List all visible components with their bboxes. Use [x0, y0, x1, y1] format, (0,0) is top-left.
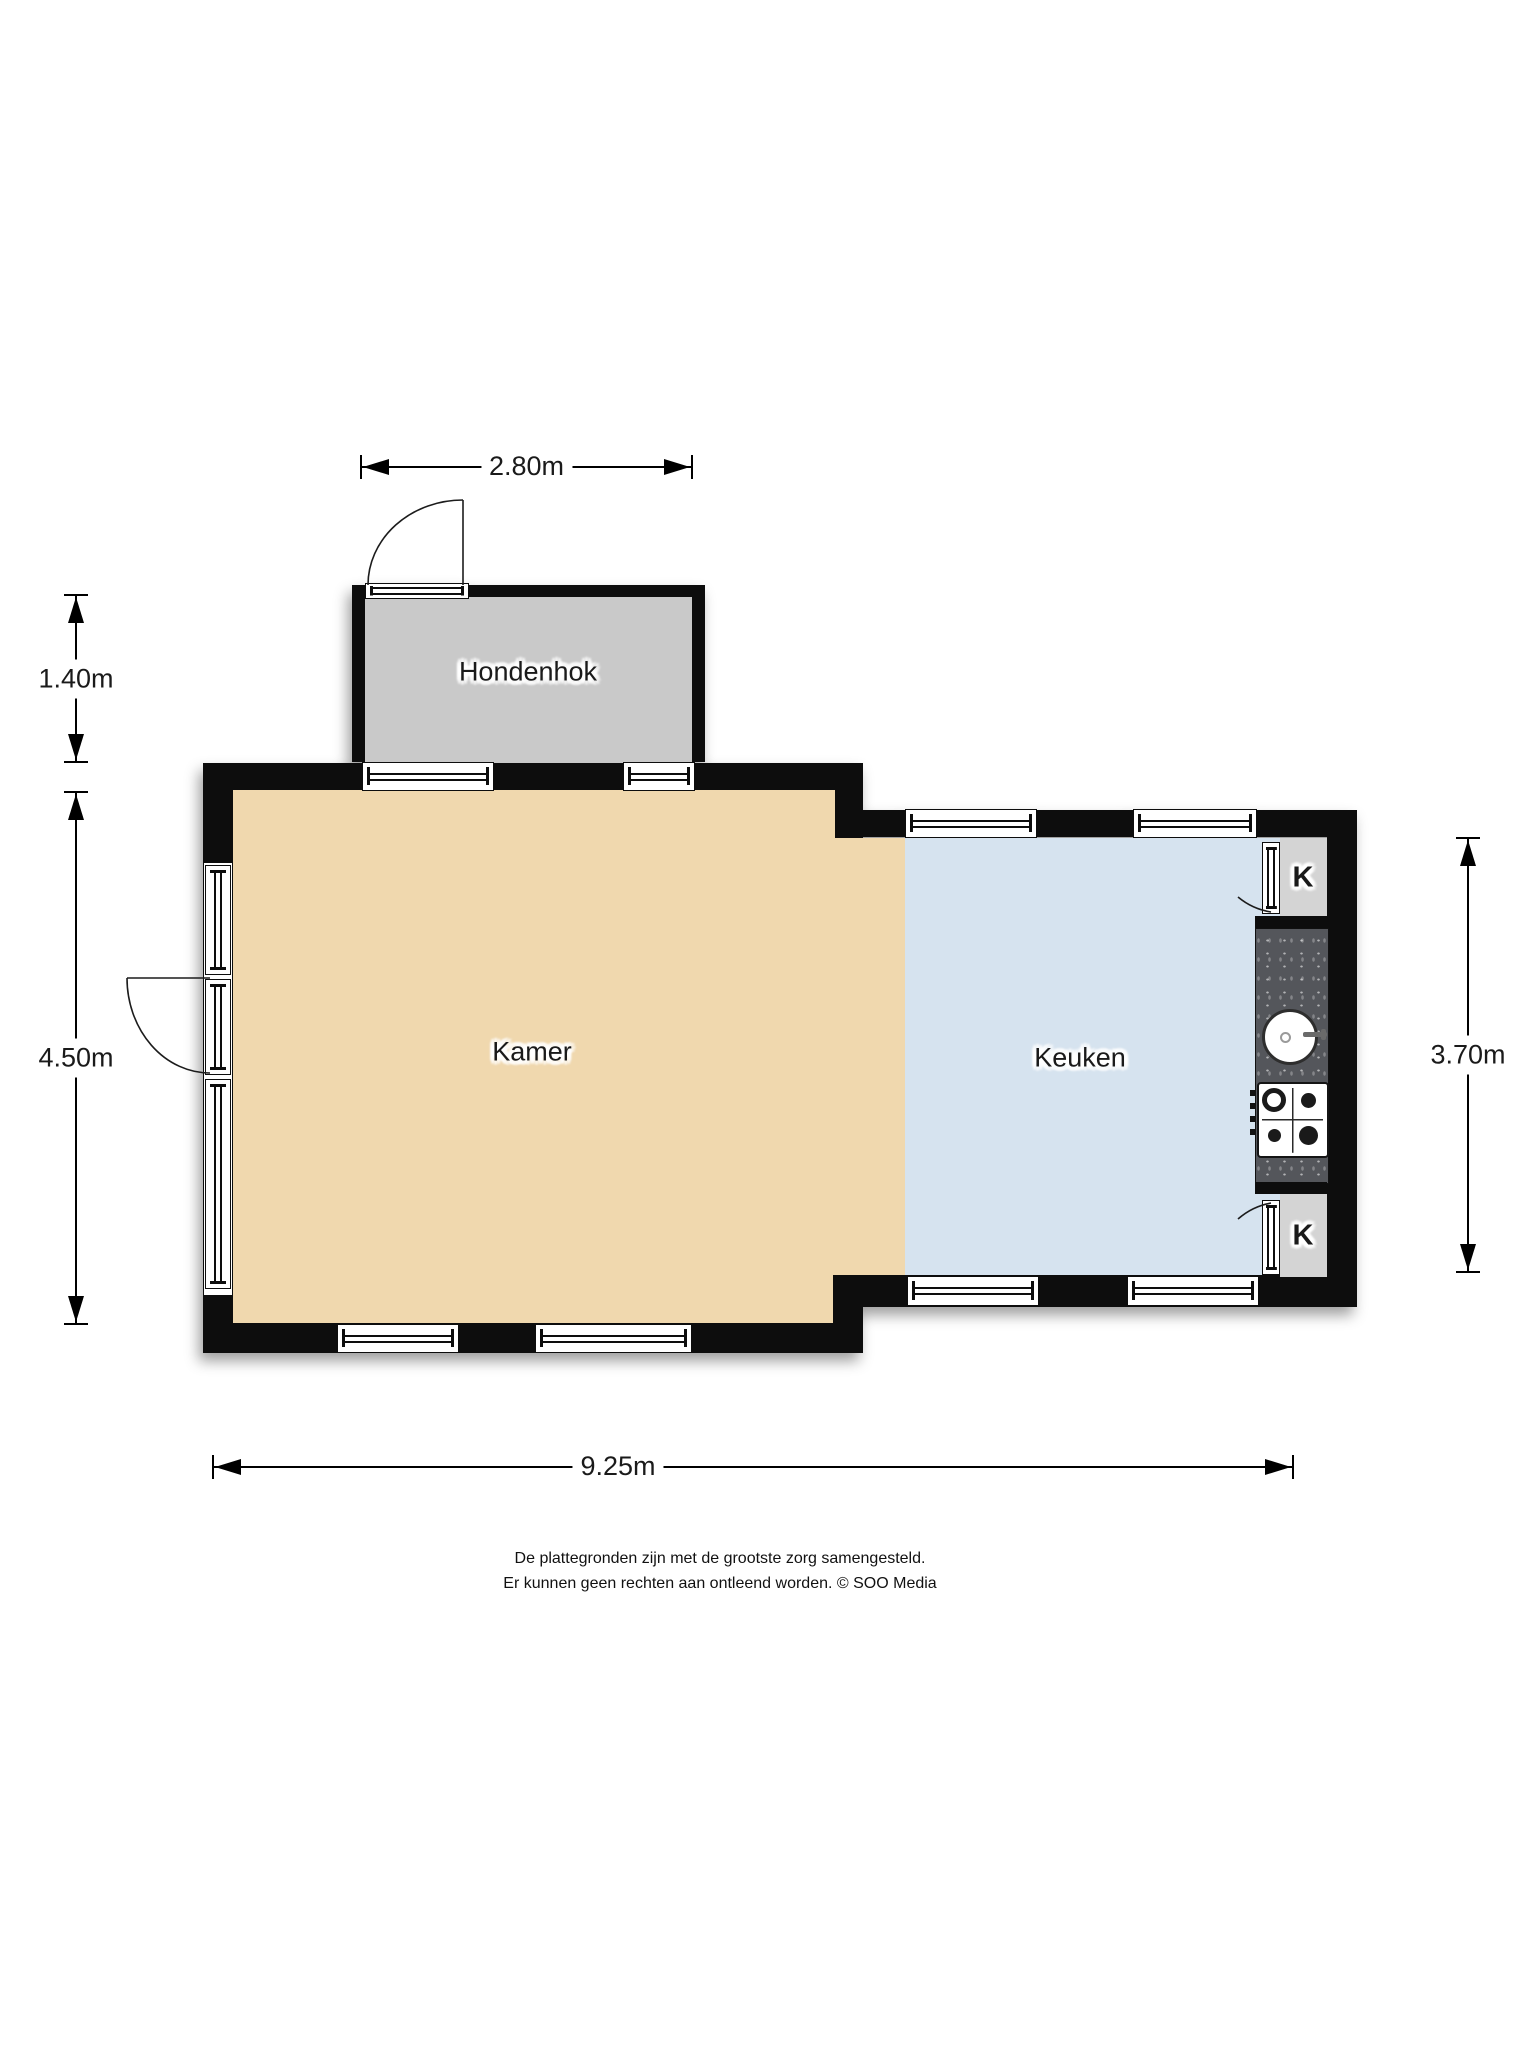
stove-icon — [1257, 1082, 1329, 1158]
dimension-tick — [1292, 1455, 1294, 1479]
closet-lower-label: K — [1293, 1220, 1314, 1253]
arrow-down-icon — [68, 1296, 84, 1322]
window — [907, 1276, 1039, 1306]
dimension-kamer-height: 4.50m — [64, 792, 88, 1324]
dimension-keuken-height: 3.70m — [1456, 838, 1480, 1272]
arrow-right-icon — [664, 459, 690, 475]
building — [0, 0, 1536, 2048]
dimension-tick — [691, 455, 693, 479]
dimension-hondenhok-height: 1.40m — [64, 595, 88, 762]
dimension-tick — [64, 761, 88, 763]
keuken-label: Keuken — [1034, 1043, 1126, 1074]
wall-hondenhok-left — [352, 585, 365, 762]
dimension-total-width: 9.25m — [213, 1455, 1293, 1479]
wall-kamer-top — [203, 763, 863, 790]
door-sill — [365, 583, 469, 599]
window — [362, 762, 494, 791]
window — [623, 762, 695, 791]
dimension-label: 2.80m — [481, 451, 572, 482]
burner-icon — [1299, 1126, 1318, 1145]
window — [337, 1324, 459, 1353]
arrow-up-icon — [68, 794, 84, 820]
wall-hondenhok-right — [692, 585, 705, 762]
faucet-handle-icon — [1321, 1029, 1326, 1040]
closet-door-leaf — [1262, 842, 1280, 914]
dimension-tick — [64, 594, 88, 596]
window — [205, 865, 231, 975]
stove-knob — [1250, 1129, 1255, 1135]
closet-upper-label: K — [1293, 862, 1314, 895]
sink-drain-icon — [1280, 1032, 1291, 1043]
dimension-tick — [1456, 837, 1480, 839]
dimension-tick — [360, 455, 362, 479]
door-panel — [205, 979, 231, 1075]
dimension-label: 4.50m — [36, 1039, 115, 1078]
burner-icon — [1268, 1129, 1281, 1142]
dimension-label: 1.40m — [36, 659, 115, 698]
kamer-label: Kamer — [492, 1037, 572, 1068]
stove-knob — [1250, 1090, 1255, 1096]
window — [1127, 1276, 1259, 1306]
stove-knob — [1250, 1116, 1255, 1122]
arrow-up-icon — [68, 597, 84, 623]
arrow-down-icon — [68, 734, 84, 760]
arrow-left-icon — [215, 1459, 241, 1475]
arrow-left-icon — [363, 459, 389, 475]
window — [905, 809, 1037, 838]
dimension-tick — [1456, 1271, 1480, 1273]
closet-partition-lower — [1255, 1182, 1327, 1194]
arrow-up-icon — [1460, 840, 1476, 866]
arrow-right-icon — [1265, 1459, 1291, 1475]
window — [205, 1079, 231, 1289]
kamer-floor-extension — [835, 838, 905, 1275]
closet-partition-upper — [1255, 916, 1327, 928]
disclaimer-line-1: De plattegronden zijn met de grootste zo… — [0, 1546, 1440, 1571]
dimension-tick — [64, 791, 88, 793]
dimension-label: 9.25m — [572, 1451, 663, 1482]
arrow-down-icon — [1460, 1244, 1476, 1270]
dimension-hondenhok-width: 2.80m — [361, 455, 692, 479]
stove-knob — [1250, 1103, 1255, 1109]
dimension-tick — [212, 1455, 214, 1479]
burner-icon — [1262, 1088, 1286, 1112]
burner-icon — [1301, 1093, 1316, 1108]
wall-kamer-bottom — [203, 1323, 863, 1353]
dimension-tick — [64, 1323, 88, 1325]
closet-door-leaf — [1262, 1200, 1280, 1275]
disclaimer-line-2: Er kunnen geen rechten aan ontleend word… — [0, 1571, 1440, 1596]
wall-right — [1327, 810, 1357, 1307]
window — [535, 1324, 692, 1353]
floorplan-canvas: Hondenhok Kamer Keuken K K 2.80m 1.40m 4… — [0, 0, 1536, 2048]
window — [1133, 809, 1257, 838]
hondenhok-label: Hondenhok — [459, 657, 597, 688]
disclaimer: De plattegronden zijn met de grootste zo… — [0, 1546, 1440, 1596]
dimension-label: 3.70m — [1428, 1036, 1507, 1075]
dimension-line — [213, 1466, 1293, 1468]
